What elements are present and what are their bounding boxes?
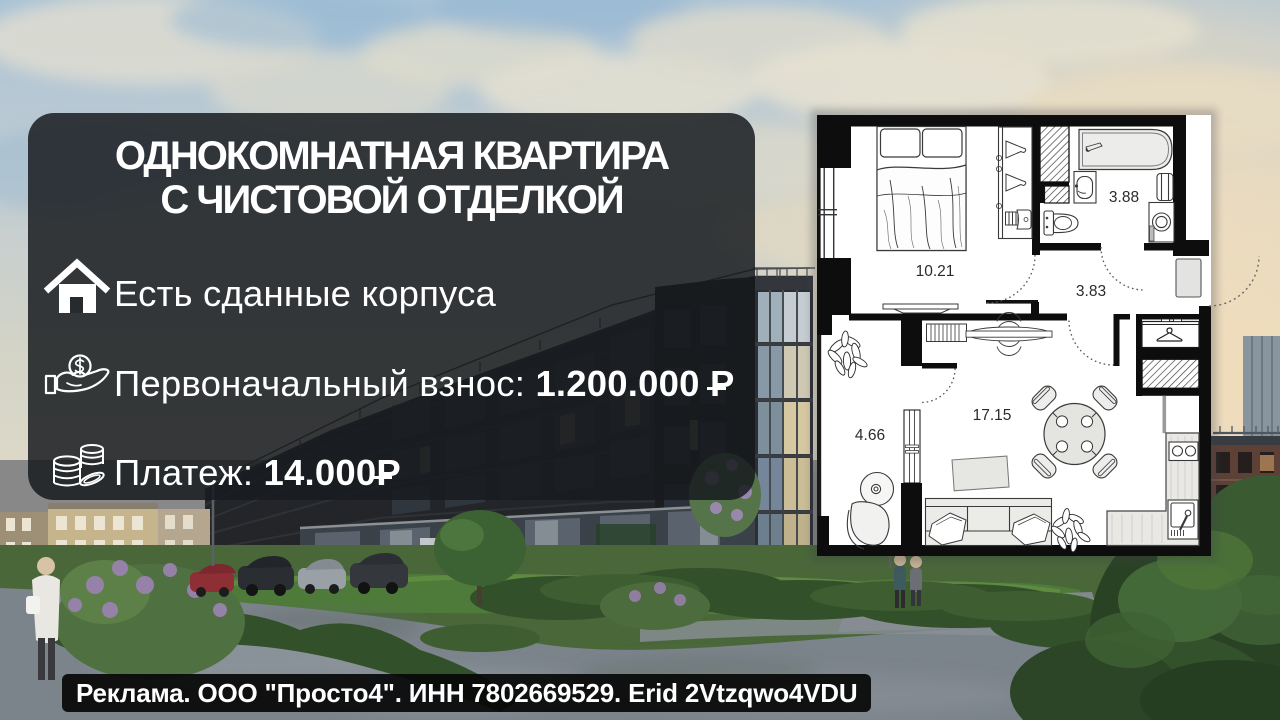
svg-text:10.21: 10.21 [916,263,955,280]
svg-text:4.66: 4.66 [855,427,885,444]
svg-text:17.15: 17.15 [973,407,1012,424]
svg-text:3.88: 3.88 [1109,189,1139,206]
svg-text:3.83: 3.83 [1076,283,1106,300]
